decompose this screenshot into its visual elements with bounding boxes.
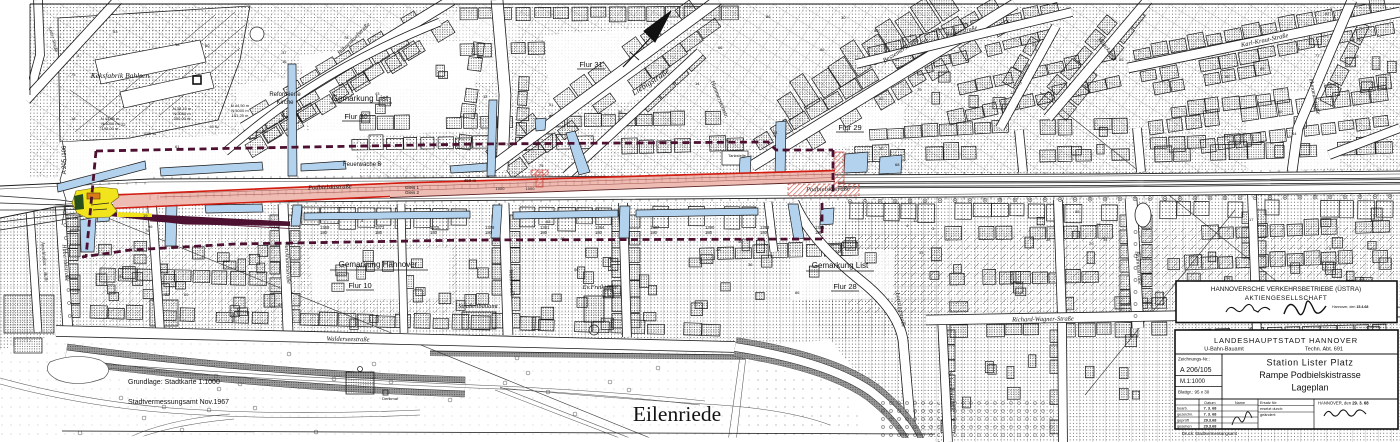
- svg-text:44: 44: [1292, 131, 1297, 136]
- svg-text:61: 61: [609, 284, 614, 289]
- svg-text:69: 69: [1260, 66, 1265, 71]
- svg-text:Zeichnungs-Nr.:: Zeichnungs-Nr.:: [1178, 357, 1210, 362]
- svg-text:Eilenriede: Eilenriede: [633, 402, 721, 426]
- svg-text:22: 22: [121, 122, 126, 127]
- svg-text:Ersatz für:: Ersatz für:: [1260, 401, 1277, 405]
- svg-text:18: 18: [71, 116, 76, 121]
- svg-text:180: 180: [760, 230, 768, 235]
- svg-text:22: 22: [165, 292, 170, 297]
- svg-text:M.1:1000: M.1:1000: [1180, 379, 1206, 385]
- svg-text:19: 19: [143, 213, 148, 218]
- svg-text:66: 66: [718, 45, 723, 50]
- svg-text:250,00 m: 250,00 m: [174, 116, 191, 121]
- svg-text:18: 18: [1046, 237, 1051, 242]
- svg-text:30: 30: [879, 146, 884, 151]
- svg-text:92: 92: [726, 138, 731, 143]
- svg-text:Waldstraße: Waldstraße: [507, 269, 515, 297]
- svg-text:40: 40: [738, 239, 743, 244]
- svg-text:Name: Name: [1235, 401, 1245, 405]
- svg-text:180: 180: [430, 230, 438, 235]
- svg-text:Gemarkung List: Gemarkung List: [332, 94, 389, 103]
- svg-text:Flur 10: Flur 10: [348, 281, 371, 290]
- svg-text:gezeichn.: gezeichn.: [1177, 413, 1193, 417]
- svg-text:ersetzt durch:: ersetzt durch:: [1260, 407, 1283, 411]
- svg-text:30: 30: [278, 118, 283, 123]
- svg-text:180: 180: [815, 230, 823, 235]
- svg-text:33: 33: [919, 250, 924, 255]
- svg-text:180: 180: [705, 230, 713, 235]
- svg-text:gesehen: gesehen: [1177, 425, 1192, 429]
- svg-text:Grundlage: Stadtkarte 1:1000: Grundlage: Stadtkarte 1:1000: [128, 379, 220, 386]
- svg-text:36: 36: [748, 262, 753, 267]
- svg-text:Lageplan: Lageplan: [1291, 383, 1328, 393]
- svg-text:Podbielskistraße: Podbielskistraße: [805, 186, 850, 194]
- svg-text:Gemarkung List: Gemarkung List: [812, 261, 869, 270]
- svg-text:Reformierte: Reformierte: [269, 92, 301, 98]
- svg-text:20: 20: [1089, 241, 1094, 246]
- svg-text:80: 80: [1225, 74, 1230, 79]
- svg-text:17: 17: [1249, 217, 1254, 222]
- svg-text:29.3.68: 29.3.68: [1204, 419, 1217, 423]
- svg-text:71: 71: [595, 206, 600, 211]
- svg-text:70: 70: [506, 142, 511, 147]
- svg-text:63: 63: [546, 219, 551, 224]
- svg-text:75: 75: [71, 72, 76, 77]
- svg-text:85: 85: [1075, 209, 1080, 214]
- svg-text:7. 3. 68: 7. 3. 68: [1204, 413, 1217, 417]
- svg-text:151,25 m: 151,25 m: [232, 113, 249, 118]
- svg-text:42: 42: [879, 96, 884, 101]
- svg-text:450 m: 450 m: [464, 178, 477, 183]
- svg-text:195,00 m: 195,00 m: [102, 126, 119, 131]
- svg-text:38: 38: [1354, 54, 1359, 59]
- svg-text:30: 30: [841, 15, 846, 20]
- svg-text:Station Lister Platz: Station Lister Platz: [1266, 358, 1353, 368]
- svg-text:16: 16: [282, 59, 287, 64]
- svg-text:18: 18: [175, 42, 180, 47]
- svg-text:A 205 /106: A 205 /106: [62, 145, 68, 174]
- svg-text:geändert:: geändert:: [1260, 413, 1276, 417]
- svg-text:LANDESHAUPTSTADT HANNOVER: LANDESHAUPTSTADT HANNOVER: [1214, 336, 1358, 345]
- svg-text:77: 77: [1315, 53, 1320, 58]
- svg-text:7. 3. 68: 7. 3. 68: [1204, 407, 1217, 411]
- svg-text:86: 86: [766, 14, 771, 19]
- svg-text:19: 19: [1374, 140, 1379, 145]
- svg-text:1000: 1000: [526, 186, 536, 191]
- svg-text:69: 69: [184, 292, 189, 297]
- svg-text:bearb.: bearb.: [1177, 407, 1188, 411]
- svg-text:Keksfabrik Bahlsen: Keksfabrik Bahlsen: [90, 71, 150, 80]
- svg-text:Kirche: Kirche: [276, 100, 294, 106]
- svg-text:87: 87: [1325, 11, 1330, 16]
- svg-text:53: 53: [113, 29, 118, 34]
- svg-text:Blattgr.: 95 x 30: Blattgr.: 95 x 30: [1178, 390, 1210, 395]
- svg-text:57: 57: [844, 128, 849, 133]
- svg-text:A 206/105: A 206/105: [1180, 367, 1212, 374]
- svg-text:56: 56: [618, 109, 623, 114]
- svg-text:HANNOVER, den 29. 3. 68: HANNOVER, den 29. 3. 68: [1318, 401, 1369, 406]
- svg-text:12: 12: [483, 94, 488, 99]
- svg-text:34: 34: [119, 274, 124, 279]
- svg-text:Datum: Datum: [1204, 401, 1215, 405]
- svg-text:38: 38: [478, 54, 483, 59]
- svg-text:1000: 1000: [496, 186, 506, 191]
- svg-text:84: 84: [773, 130, 778, 135]
- svg-text:61: 61: [175, 144, 180, 149]
- svg-text:86: 86: [795, 290, 800, 295]
- svg-text:Stadtvermessungsamt Nov.1967: Stadtvermessungsamt Nov.1967: [128, 399, 229, 406]
- svg-text:87: 87: [1096, 222, 1101, 227]
- svg-text:37: 37: [282, 50, 287, 55]
- svg-text:180: 180: [595, 230, 603, 235]
- svg-text:Walderseestraße: Walderseestraße: [326, 336, 369, 344]
- svg-text:60: 60: [205, 43, 210, 48]
- svg-text:88: 88: [874, 28, 879, 33]
- svg-text:12: 12: [1278, 109, 1283, 114]
- svg-text:Rampe Podbielskistrasse: Rampe Podbielskistrasse: [1259, 370, 1361, 380]
- svg-text:geprüft: geprüft: [1177, 419, 1190, 423]
- svg-text:Druck: Stadtvermessungsamt: Druck: Stadtvermessungsamt: [1182, 431, 1238, 436]
- svg-text:55: 55: [1119, 57, 1124, 62]
- svg-text:Flur 29: Flur 29: [838, 123, 861, 132]
- svg-text:AKTIENGESELLSCHAFT: AKTIENGESELLSCHAFT: [1245, 295, 1328, 302]
- svg-text:68: 68: [895, 162, 900, 167]
- svg-text:Straßenbauamt: Straßenbauamt: [458, 303, 498, 310]
- svg-text:Feuerwache 5: Feuerwache 5: [343, 162, 382, 168]
- svg-text:Richard-Wagner-Straße: Richard-Wagner-Straße: [1011, 315, 1074, 323]
- svg-text:180: 180: [650, 230, 658, 235]
- svg-text:79: 79: [917, 87, 922, 92]
- svg-text:180: 180: [540, 230, 548, 235]
- svg-text:15: 15: [1356, 37, 1361, 42]
- svg-text:Denkmal: Denkmal: [382, 396, 398, 401]
- svg-text:U-Bahn-Bauamt: U-Bahn-Bauamt: [1204, 347, 1244, 353]
- svg-text:34: 34: [1328, 84, 1333, 89]
- svg-text:0,00 ‰: 0,00 ‰: [144, 132, 156, 136]
- svg-text:29.3.68: 29.3.68: [1204, 425, 1217, 429]
- svg-text:42: 42: [560, 236, 565, 241]
- svg-text:Tankstelle: Tankstelle: [728, 153, 747, 158]
- svg-text:78: 78: [344, 35, 349, 40]
- svg-text:Techn. Abt. 691: Techn. Abt. 691: [1305, 347, 1343, 353]
- svg-text:Hannover, den 15.4.68: Hannover, den 15.4.68: [1332, 305, 1368, 309]
- svg-text:51: 51: [549, 102, 554, 107]
- svg-text:43: 43: [375, 91, 380, 96]
- svg-text:55: 55: [895, 57, 900, 62]
- svg-text:28: 28: [716, 247, 721, 252]
- svg-text:180: 180: [320, 230, 328, 235]
- svg-text:HANNOVERSCHE VERKEHRSBETRIEBE: HANNOVERSCHE VERKEHRSBETRIEBE (ÜSTRA): [1211, 285, 1361, 293]
- svg-text:Gleis 2: Gleis 2: [405, 190, 420, 195]
- svg-text:69: 69: [278, 302, 283, 307]
- svg-text:34: 34: [1103, 237, 1108, 242]
- svg-text:10: 10: [377, 161, 382, 166]
- svg-text:Flur 30: Flur 30: [344, 112, 367, 121]
- svg-text:75: 75: [539, 163, 544, 168]
- svg-text:42: 42: [1226, 275, 1231, 280]
- svg-text:Flur 31: Flur 31: [579, 60, 602, 69]
- svg-text:180: 180: [375, 230, 383, 235]
- svg-text:180: 180: [485, 230, 493, 235]
- svg-text:14: 14: [695, 81, 700, 86]
- svg-text:76: 76: [145, 228, 150, 233]
- svg-text:56: 56: [574, 267, 579, 272]
- svg-text:Gemarkung Hannover: Gemarkung Hannover: [339, 260, 418, 269]
- svg-text:89: 89: [820, 47, 825, 52]
- svg-text:Flur 28: Flur 28: [833, 282, 856, 291]
- svg-text:40 ‰: 40 ‰: [209, 125, 218, 129]
